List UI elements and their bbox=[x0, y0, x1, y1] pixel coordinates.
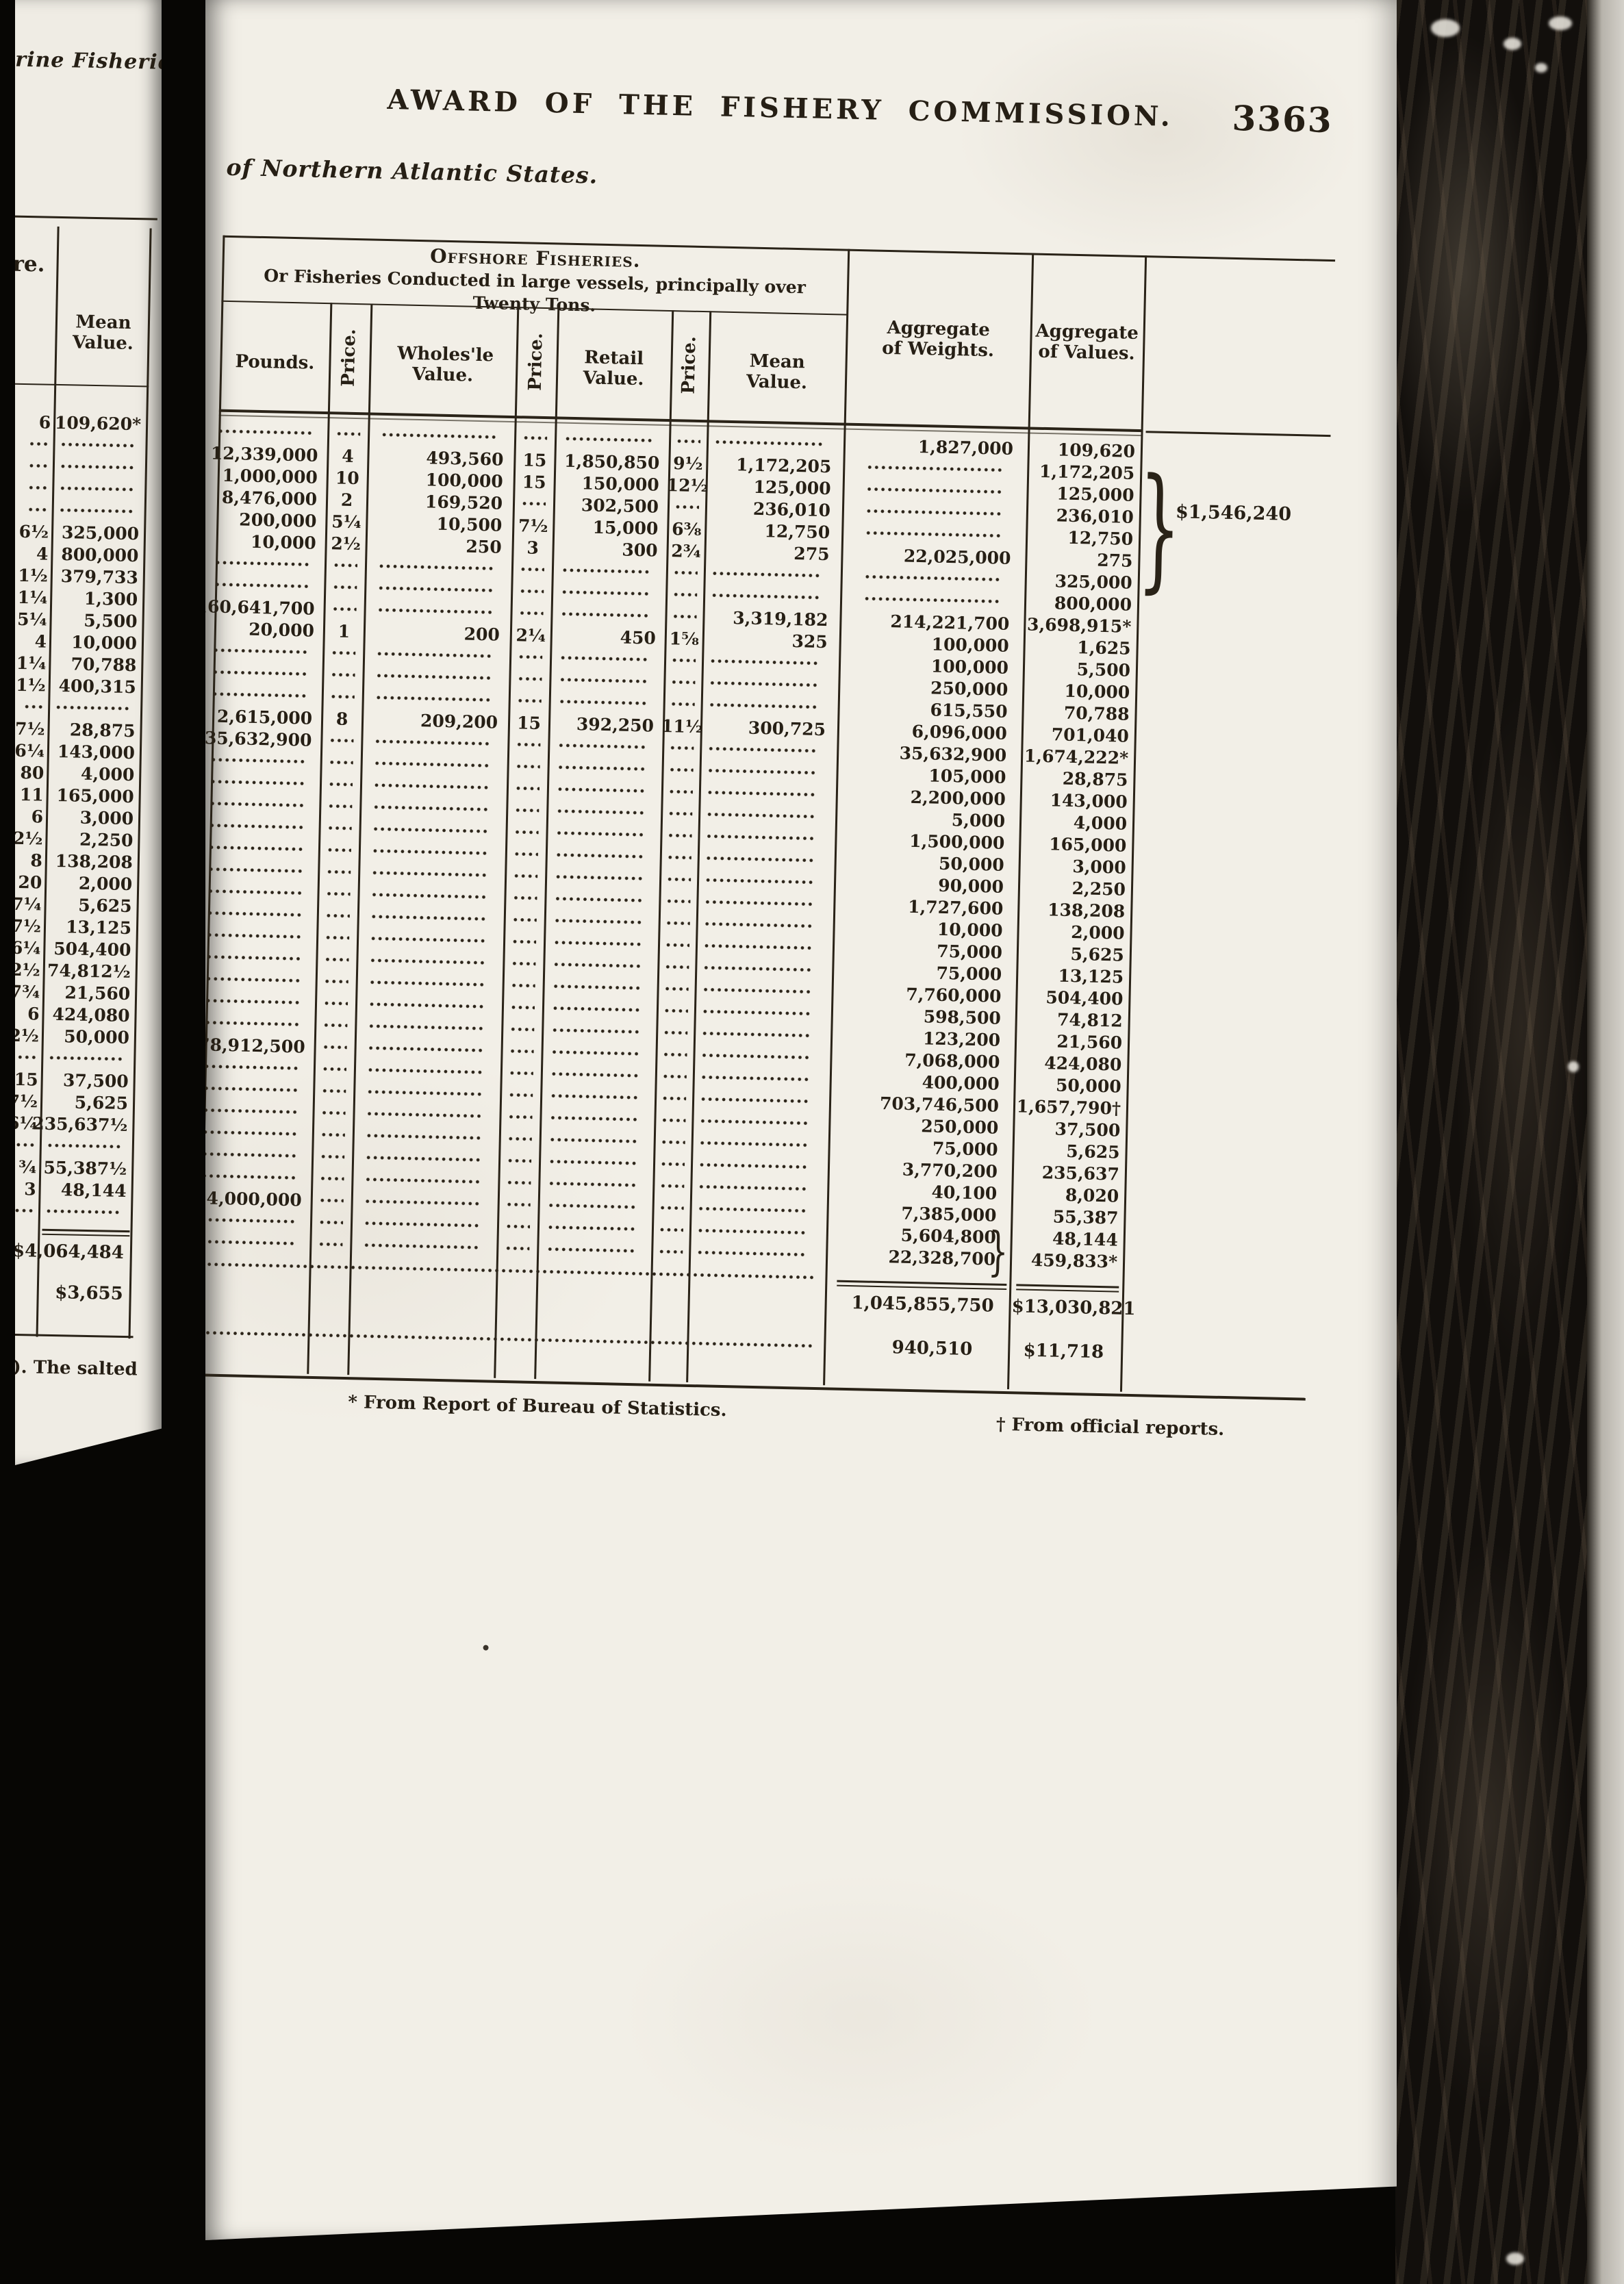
fragment-table-cell: 4,000 bbox=[48, 763, 142, 785]
table-cell bbox=[205, 1064, 314, 1070]
fragment-table-row: 63,000 bbox=[0, 804, 140, 829]
table-cell: 3,319,182 bbox=[703, 607, 841, 630]
table-cell bbox=[315, 1023, 355, 1028]
table-cell: 12,339,000 bbox=[218, 443, 328, 465]
fragment-table-cell: 21,560 bbox=[44, 982, 138, 1004]
table-cell: 109,620 bbox=[1028, 439, 1143, 461]
table-cell bbox=[661, 811, 699, 816]
table-cell bbox=[201, 1239, 310, 1245]
table-cell bbox=[503, 983, 544, 988]
table-cell bbox=[316, 1001, 356, 1006]
dotted-leader bbox=[698, 1228, 808, 1234]
table-cell bbox=[503, 961, 544, 966]
table-cell bbox=[552, 589, 666, 596]
table-cell bbox=[540, 1159, 654, 1166]
table-cell: 7,068,000 bbox=[830, 1048, 1015, 1072]
fragment-table-row: 12½74,812½ bbox=[0, 958, 138, 982]
total-rule bbox=[1016, 1284, 1119, 1288]
fragment-table-cell: 6¼ bbox=[0, 937, 45, 958]
table-cell bbox=[368, 432, 515, 440]
table-cell: 2,200,000 bbox=[837, 785, 1022, 809]
dotted-leader bbox=[513, 917, 536, 922]
table-cell: 300,725 bbox=[701, 717, 839, 739]
rule bbox=[8, 383, 149, 388]
table-cell bbox=[692, 1141, 829, 1147]
dotted-leader bbox=[867, 509, 1004, 516]
table-cell: 1,172,205 bbox=[1028, 461, 1142, 483]
dotted-leader bbox=[206, 998, 302, 1004]
fragment-table-cell bbox=[6, 463, 54, 468]
table-cell bbox=[665, 614, 703, 619]
table-cell bbox=[359, 848, 506, 856]
table-cell: 6⅜ bbox=[668, 518, 706, 539]
table-cell: 37,500 bbox=[1013, 1118, 1128, 1141]
fragment-table-cell bbox=[42, 1056, 136, 1062]
table-cell bbox=[501, 1071, 542, 1076]
table-cell bbox=[538, 1225, 652, 1232]
dotted-leader bbox=[511, 1027, 534, 1032]
dotted-leader bbox=[672, 680, 695, 685]
dotted-leader bbox=[509, 1115, 532, 1119]
table-cell bbox=[206, 998, 316, 1004]
table-cell bbox=[539, 1181, 653, 1188]
table-cell bbox=[357, 936, 504, 943]
fragment-table-row: 5¼5,500 bbox=[3, 607, 144, 632]
dotted-leader bbox=[552, 1071, 641, 1078]
table-cell: 2,615,000 bbox=[212, 706, 322, 728]
dotted-leader bbox=[661, 1162, 684, 1167]
table-cell bbox=[213, 692, 322, 698]
table-cell bbox=[207, 932, 317, 939]
table-cell bbox=[353, 1155, 499, 1163]
dotted-leader bbox=[706, 878, 815, 884]
dotted-leader bbox=[369, 1024, 485, 1031]
table-cell bbox=[214, 670, 323, 676]
dotted-leader bbox=[375, 739, 492, 746]
table-cell bbox=[843, 465, 1028, 473]
dotted-leader bbox=[201, 1239, 296, 1245]
fragment-table-cell bbox=[40, 1209, 133, 1215]
dotted-leader bbox=[667, 899, 690, 904]
table-cell: 1,850,850 bbox=[555, 451, 670, 473]
table-cell: 2¼ bbox=[511, 625, 552, 646]
fragment-table-cell: 37,500 bbox=[42, 1069, 136, 1091]
table-cell bbox=[664, 702, 702, 707]
table-cell: 325 bbox=[702, 629, 840, 652]
table-cell: 105,000 bbox=[837, 763, 1022, 787]
dotted-leader bbox=[662, 1118, 685, 1123]
table-cell bbox=[548, 743, 663, 750]
fragment-table-cell: 12½ bbox=[0, 1025, 43, 1045]
table-cell bbox=[209, 889, 318, 895]
dotted-leader bbox=[557, 853, 646, 859]
dotted-leader bbox=[371, 937, 487, 943]
table-cell bbox=[664, 680, 702, 685]
dotted-leader bbox=[561, 656, 650, 662]
table-cell bbox=[691, 1184, 828, 1191]
table-cell bbox=[702, 702, 839, 709]
dotted-leader bbox=[213, 692, 309, 698]
table-cell bbox=[841, 574, 1026, 583]
dotted-leader bbox=[508, 1158, 531, 1163]
dotted-leader bbox=[322, 1067, 346, 1071]
table-cell: 7,385,000 bbox=[827, 1202, 1012, 1226]
dotted-leader bbox=[712, 593, 822, 599]
fragment-table-row: 1½379,733 bbox=[4, 563, 146, 588]
dotted-leader bbox=[668, 877, 691, 882]
fragment-table-cell: 1¼ bbox=[3, 587, 52, 607]
table-cell: 7,760,000 bbox=[832, 982, 1017, 1006]
table-cell: 12,750 bbox=[705, 520, 843, 542]
dotted-leader bbox=[201, 1217, 297, 1223]
fragment-mean-value-header: Mean Value. bbox=[56, 295, 151, 372]
dotted-leader bbox=[701, 1097, 811, 1103]
dotted-leader bbox=[513, 896, 537, 900]
table-cell: 236,010 bbox=[1027, 505, 1141, 527]
dotted-leader bbox=[669, 811, 692, 816]
fragment-table-cell: 5,625 bbox=[45, 894, 139, 916]
dotted-leader bbox=[664, 1030, 687, 1035]
dotted-leader bbox=[372, 893, 488, 900]
table-cell bbox=[354, 1089, 500, 1097]
table-cell bbox=[358, 892, 505, 900]
table-cell bbox=[315, 1045, 355, 1050]
table-cell: 90,000 bbox=[835, 873, 1019, 897]
dotted-leader bbox=[702, 1075, 811, 1081]
dotted-leader bbox=[326, 913, 349, 918]
table-cell bbox=[694, 1075, 830, 1082]
table-cell bbox=[655, 1140, 692, 1145]
dotted-leader bbox=[29, 507, 49, 512]
dotted-leader bbox=[56, 705, 131, 711]
fragment-table-cell: 138,208 bbox=[47, 850, 140, 872]
dotted-leader bbox=[673, 614, 696, 619]
total-rule bbox=[837, 1285, 1006, 1290]
table-cell bbox=[203, 1152, 312, 1158]
dotted-leader bbox=[510, 1049, 533, 1054]
rule bbox=[11, 216, 157, 220]
dotted-leader bbox=[329, 782, 352, 787]
table-cell bbox=[541, 1093, 655, 1100]
dotted-leader bbox=[669, 789, 692, 794]
dotted-leader bbox=[210, 824, 306, 830]
dotted-leader bbox=[372, 915, 488, 922]
table-cell bbox=[357, 980, 503, 987]
table-cell bbox=[505, 917, 545, 922]
dotted-leader bbox=[663, 1052, 687, 1057]
table-cell bbox=[201, 1217, 311, 1223]
dotted-leader bbox=[208, 911, 304, 917]
table-cell: 1,657,790† bbox=[1014, 1096, 1128, 1119]
fragment-table-cell: 424,080 bbox=[43, 1004, 137, 1026]
fragment-table-cell bbox=[53, 508, 147, 514]
table-cell bbox=[313, 1132, 353, 1137]
fragment-table-cell bbox=[5, 507, 53, 511]
column-header-aggregate-values: Aggregate of Values. bbox=[1029, 281, 1144, 407]
dotted-leader bbox=[700, 1163, 809, 1169]
dotted-leader bbox=[319, 1242, 342, 1247]
addendum-weights: 940,510 bbox=[787, 1335, 973, 1360]
document-page: AWARD OF THE FISHERY COMMISSION. 3363 of… bbox=[205, 0, 1397, 2240]
film-speck bbox=[1506, 2253, 1524, 2265]
dotted-leader bbox=[704, 965, 813, 972]
dotted-leader bbox=[513, 939, 536, 944]
dotted-leader bbox=[369, 1046, 485, 1053]
table-cell: 1,000,000 bbox=[218, 465, 328, 487]
table-cell: 22,328,700 bbox=[826, 1245, 1011, 1269]
table-cell bbox=[655, 1096, 693, 1101]
dotted-leader bbox=[520, 567, 544, 572]
fragment-table-row bbox=[5, 476, 147, 500]
dotted-leader bbox=[674, 570, 697, 575]
table-cell bbox=[555, 436, 670, 443]
table-cell bbox=[210, 846, 319, 852]
table-cell: 5,000 bbox=[836, 807, 1021, 831]
dotted-leader bbox=[550, 1137, 639, 1143]
fragment-table-cell: 1½ bbox=[4, 565, 53, 585]
fragment-table-cell: 3 bbox=[0, 1178, 40, 1199]
table-cell bbox=[660, 877, 698, 882]
table-cell bbox=[698, 878, 835, 885]
dotted-leader bbox=[329, 760, 353, 765]
table-cell bbox=[311, 1220, 351, 1225]
dotted-leader bbox=[563, 568, 652, 574]
column-header-aggregate-weights: Aggregate of Weights. bbox=[845, 277, 1031, 404]
table-cell bbox=[210, 824, 320, 830]
dotted-leader bbox=[707, 834, 816, 840]
fragment-table-row bbox=[1, 695, 143, 720]
dotted-leader bbox=[365, 1221, 481, 1228]
page-title: AWARD OF THE FISHERY COMMISSION. bbox=[359, 83, 1202, 134]
dotted-leader bbox=[549, 1181, 638, 1187]
dotted-leader bbox=[209, 867, 305, 873]
table-cell bbox=[694, 1053, 830, 1060]
dotted-leader bbox=[333, 563, 357, 568]
fragment-bottom-text: ch). The salted bbox=[0, 1356, 138, 1380]
table-cell bbox=[696, 943, 833, 950]
table-cell bbox=[653, 1206, 691, 1210]
footnote-right: † From official reports. bbox=[996, 1414, 1225, 1440]
film-speck bbox=[1535, 63, 1547, 73]
fragment-table-row: 8138,208 bbox=[0, 848, 140, 873]
table-cell bbox=[505, 896, 545, 900]
table-cell: 2½ bbox=[325, 533, 366, 554]
table-cell bbox=[351, 1243, 497, 1250]
fragment-table-cell: 6½ bbox=[5, 521, 53, 542]
table-cell bbox=[361, 783, 507, 790]
table-cell: 200 bbox=[364, 622, 511, 645]
table-cell: 9½ bbox=[669, 453, 707, 474]
table-cell bbox=[700, 768, 837, 775]
dotted-leader bbox=[518, 698, 541, 703]
dotted-leader bbox=[507, 1180, 531, 1185]
table-cell bbox=[695, 1009, 832, 1016]
dotted-leader bbox=[559, 744, 648, 750]
dotted-leader bbox=[323, 1045, 346, 1050]
header-rule-extension bbox=[1146, 431, 1331, 437]
table-cell: 678,912,500 bbox=[205, 1035, 315, 1056]
table-cell bbox=[507, 808, 547, 813]
fragment-total: $4,064,484 bbox=[12, 1241, 125, 1263]
table-cell bbox=[320, 826, 360, 830]
table-cell bbox=[312, 1198, 352, 1203]
dotted-leader bbox=[207, 954, 303, 961]
dotted-leader bbox=[663, 1096, 686, 1101]
dotted-leader bbox=[320, 1176, 344, 1181]
table-cell: 22,025,000 bbox=[841, 544, 1026, 568]
dotted-leader bbox=[524, 435, 547, 440]
table-cell bbox=[328, 431, 368, 436]
fragment-table-cell bbox=[0, 1142, 41, 1147]
dotted-leader bbox=[324, 1001, 347, 1006]
dotted-leader bbox=[379, 564, 496, 571]
fragment-table-cell: 800,000 bbox=[52, 544, 146, 566]
dotted-leader bbox=[665, 965, 689, 969]
dotted-leader bbox=[707, 856, 816, 862]
table-cell: 2,000 bbox=[1017, 921, 1132, 943]
table-cell: 12½ bbox=[668, 475, 707, 496]
table-cell bbox=[542, 1028, 657, 1035]
table-cell bbox=[365, 585, 511, 593]
table-cell bbox=[325, 607, 365, 611]
table-cell: 143,000 bbox=[1020, 789, 1134, 812]
dotted-leader bbox=[330, 738, 353, 743]
dotted-leader bbox=[553, 1028, 642, 1035]
table-cell: 12,750 bbox=[1026, 526, 1141, 549]
table-cell bbox=[515, 435, 555, 440]
dotted-leader bbox=[321, 1132, 344, 1137]
dotted-leader bbox=[560, 700, 649, 706]
table-cell bbox=[667, 570, 705, 575]
table-cell: 1,674,222* bbox=[1022, 746, 1136, 768]
fragment-table-cell: 235,637½ bbox=[41, 1113, 135, 1135]
dotted-leader bbox=[515, 830, 538, 835]
dotted-leader bbox=[204, 1108, 300, 1114]
dotted-leader bbox=[557, 831, 646, 837]
dotted-leader bbox=[554, 963, 643, 969]
table-cell bbox=[498, 1224, 538, 1229]
table-cell bbox=[547, 830, 661, 837]
dotted-leader bbox=[520, 589, 544, 594]
dotted-leader bbox=[508, 1137, 531, 1141]
dotted-leader bbox=[509, 1093, 533, 1097]
table-cell bbox=[312, 1154, 353, 1159]
dotted-leader bbox=[555, 941, 644, 947]
table-cell bbox=[505, 874, 546, 878]
fragment-table-cell: 50,000 bbox=[43, 1026, 137, 1048]
table-cell: 4 bbox=[327, 446, 368, 466]
table-cell bbox=[702, 681, 839, 687]
table-cell: 615,550 bbox=[838, 698, 1023, 722]
table-cell: 15,000 bbox=[553, 516, 668, 539]
dotted-leader bbox=[60, 486, 136, 492]
table-cell bbox=[499, 1158, 540, 1163]
dotted-leader bbox=[328, 826, 351, 830]
table-cell: 8 bbox=[322, 709, 363, 729]
dotted-leader bbox=[324, 1023, 347, 1028]
table-cell bbox=[323, 650, 364, 655]
fragment-table-cell: 109,620* bbox=[55, 412, 149, 434]
table-cell bbox=[314, 1067, 355, 1071]
table-cell bbox=[360, 804, 507, 812]
dotted-leader bbox=[516, 786, 539, 791]
dotted-leader bbox=[333, 585, 357, 589]
table-cell: 1,625 bbox=[1024, 636, 1138, 659]
table-cell bbox=[363, 673, 509, 681]
dotted-leader bbox=[702, 1031, 812, 1037]
fragment-running-title: rine Fisheries bbox=[15, 48, 184, 75]
dotted-leader bbox=[366, 1178, 482, 1184]
table-cell bbox=[692, 1163, 828, 1169]
table-cell bbox=[843, 509, 1027, 517]
fragment-table-row: ¾55,387½ bbox=[0, 1155, 134, 1180]
table-cell bbox=[689, 1250, 826, 1257]
dotted-leader bbox=[674, 592, 697, 597]
table-cell bbox=[508, 764, 548, 769]
fragment-table-cell bbox=[7, 441, 55, 446]
fragment-table-cell: 12½ bbox=[0, 959, 45, 980]
table-cell bbox=[663, 746, 700, 750]
table-cell bbox=[510, 655, 550, 659]
offshore-fisheries-table: Offshore Fisheries. Or Fisheries Conduct… bbox=[198, 236, 1146, 1392]
table-cell bbox=[359, 870, 505, 878]
dotted-leader bbox=[377, 674, 493, 681]
table-cell: 4,000 bbox=[1020, 811, 1134, 834]
dotted-leader bbox=[560, 678, 649, 684]
dotted-leader bbox=[514, 852, 537, 856]
table-cell bbox=[204, 1108, 314, 1114]
table-cell bbox=[704, 593, 841, 600]
dotted-leader bbox=[556, 875, 645, 881]
dotted-leader bbox=[558, 787, 647, 794]
table-cell bbox=[310, 1242, 351, 1247]
fragment-table-cell: 28,875 bbox=[49, 719, 142, 741]
dotted-leader bbox=[700, 1141, 810, 1147]
fragment-table-cell bbox=[49, 705, 142, 711]
table-cell bbox=[540, 1137, 655, 1144]
dotted-leader bbox=[511, 983, 535, 988]
table-cell: 3,000 bbox=[1019, 855, 1133, 878]
dotted-leader bbox=[368, 1090, 484, 1097]
table-cell bbox=[843, 487, 1028, 495]
table-cell bbox=[214, 648, 323, 655]
table-cell: 10,000 bbox=[216, 531, 326, 553]
fragment-table-cell: 20 bbox=[0, 872, 47, 892]
table-cell bbox=[548, 765, 663, 772]
table-cell bbox=[203, 1130, 313, 1136]
dotted-leader bbox=[337, 431, 360, 436]
table-cell bbox=[542, 1050, 657, 1056]
dotted-leader bbox=[668, 833, 692, 838]
fragment-table-row: 12½50,000 bbox=[0, 1024, 136, 1048]
table-body: 1,827,000109,62012,339,0004493,560151,85… bbox=[201, 420, 1142, 1273]
dotted-leader bbox=[49, 1056, 125, 1061]
dotted-leader bbox=[370, 980, 487, 987]
fragment-table-cell: 13,125 bbox=[45, 916, 139, 938]
page-subtitle: of Northern Atlantic States. bbox=[226, 154, 598, 189]
dotted-leader bbox=[327, 891, 350, 896]
dotted-leader bbox=[664, 1008, 687, 1013]
dotted-leader bbox=[210, 802, 306, 808]
table-cell: 75,000 bbox=[833, 961, 1017, 985]
dotted-leader bbox=[865, 574, 1002, 581]
ink-speck bbox=[483, 1645, 488, 1651]
table-cell bbox=[513, 501, 554, 506]
dotted-leader bbox=[711, 659, 820, 665]
dotted-leader bbox=[699, 1184, 809, 1191]
table-cell bbox=[666, 592, 704, 597]
dotted-leader bbox=[372, 871, 489, 878]
